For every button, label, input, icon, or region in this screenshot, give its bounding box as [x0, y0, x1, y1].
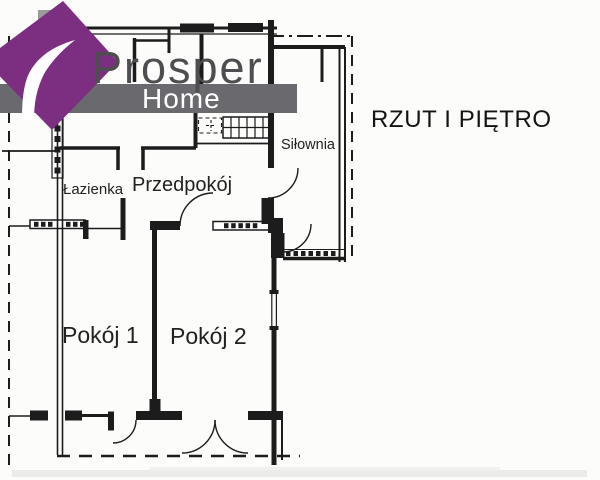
door-arcs: [113, 168, 311, 453]
room-label-lazienka: Łazienka: [63, 181, 123, 198]
room-label-pokoj-1: Pokój 1: [62, 322, 139, 349]
floor-plan-drawing: [0, 0, 600, 480]
staircase: [196, 113, 271, 148]
room-label-pokoj-2: Pokój 2: [170, 323, 247, 350]
room-label-przedpokoj: Przedpokój: [132, 174, 232, 197]
room-label-silownia: Siłownia: [281, 137, 335, 153]
logo-subtitle-text: Home: [142, 85, 221, 113]
floor-plan-page: Łazienka Przedpokój Siłownia Pokój 1 Pok…: [0, 0, 600, 480]
page-title: RZUT I PIĘTRO: [371, 106, 552, 134]
